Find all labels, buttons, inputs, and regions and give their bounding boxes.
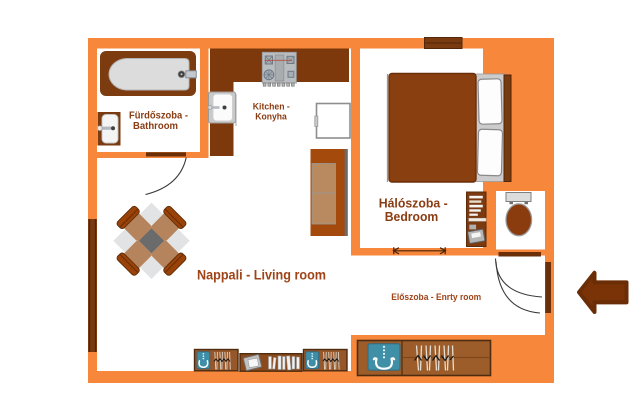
svg-text:Bathroom: Bathroom [133,121,178,132]
svg-text:Bedroom: Bedroom [385,210,439,224]
svg-text:Kitchen -: Kitchen - [253,102,290,112]
svg-text:Előszoba - Enrty room: Előszoba - Enrty room [391,292,481,303]
svg-text:Nappali - Living room: Nappali - Living room [197,267,326,282]
svg-text:Konyha: Konyha [255,112,287,122]
svg-text:Hálószoba -: Hálószoba - [379,196,448,210]
svg-text:Fürdőszoba -: Fürdőszoba - [129,110,188,121]
